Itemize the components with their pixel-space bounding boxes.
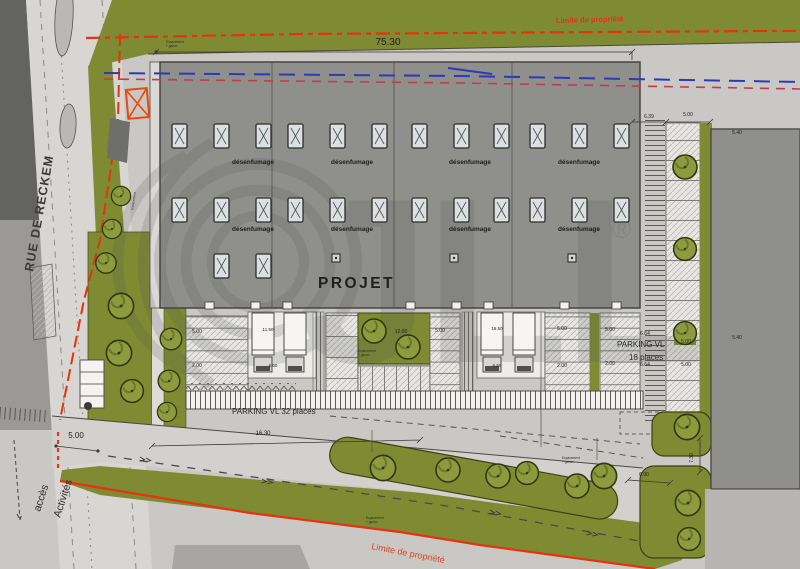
smoke-vent-label: désenfumage [232,159,274,166]
site-plan: JLL ® désenfumage désenfumage désenfumag… [0,0,800,569]
svg-text:+ gazon: + gazon [366,520,378,524]
tree-icon [675,490,700,515]
tree-icon [486,464,510,488]
tree-icon [362,319,386,343]
site-plan-drawing: JLL ® désenfumage désenfumage désenfumag… [0,0,800,569]
parking-main-label: PARKING VL 32 places [232,407,316,416]
svg-text:12.00: 12.00 [395,329,408,335]
smoke-vent-label: désenfumage [449,159,491,166]
svg-text:5.00: 5.00 [605,327,615,333]
svg-text:6.64: 6.64 [640,362,650,368]
svg-text:16.50: 16.50 [491,326,503,331]
tree-icon [106,340,131,365]
tree-icon [678,528,701,551]
svg-text:2.00: 2.00 [192,363,202,369]
svg-text:5.00: 5.00 [683,112,693,118]
tree-icon [121,380,144,403]
tree-icon [516,462,539,485]
tree-icon [160,328,182,350]
parking-side-label-2: 18 places [629,353,663,362]
tree-icon [157,402,176,421]
road-stub [172,545,310,569]
svg-text:11.50: 11.50 [263,327,274,332]
svg-text:+ gazon: + gazon [166,44,178,48]
svg-text:5.00: 5.00 [681,339,691,345]
svg-text:5.00: 5.00 [557,326,567,332]
tree-icon [674,238,697,261]
svg-text:6.90: 6.90 [639,472,649,478]
small-structure-dark [107,118,130,163]
svg-text:6.39: 6.39 [644,114,654,120]
smoke-vent-label: désenfumage [558,226,600,233]
tree-icon [370,455,395,480]
smoke-vent-label: désenfumage [232,226,274,233]
svg-text:6.60: 6.60 [269,363,278,368]
green-strip-right [700,123,712,420]
tree-icon [673,155,697,179]
svg-text:5.40: 5.40 [732,335,742,341]
adjacent-building [705,129,800,569]
parking-side-label-1: PARKING VL [617,340,665,349]
svg-text:5.00: 5.00 [435,328,445,334]
tree-icon [102,219,121,238]
stair-structure [80,360,104,410]
tree-icon [108,293,133,318]
svg-text:5.40: 5.40 [732,130,742,136]
tree-icon [111,186,130,205]
tree-icon [436,458,460,482]
tree-icon [565,474,589,498]
truck-icon [284,313,306,372]
svg-text:2.00: 2.00 [605,361,615,367]
project-title: PROJET [318,275,395,292]
truck-icon [513,313,535,372]
smoke-vent-label: désenfumage [558,159,600,166]
tree-icon [158,370,180,392]
svg-text:5.00: 5.00 [681,362,691,368]
svg-text:6.64: 6.64 [640,331,650,337]
smoke-vent-label: désenfumage [331,226,373,233]
tree-icon [96,253,116,273]
crosswalk-hatch [30,264,56,340]
smoke-vent-label: désenfumage [449,226,491,233]
tree-icon [396,335,420,359]
svg-text:5.00: 5.00 [192,329,202,335]
smoke-vent-label: désenfumage [331,159,373,166]
green-corner-2 [640,466,711,558]
tree-icon [591,463,616,488]
svg-text:6.60: 6.60 [493,363,502,368]
property-limit-label-top: Limite de propriété [556,14,624,25]
dim-access: 5.00 [68,431,84,440]
dim-building-width: 75.30 [375,37,400,48]
svg-text:7.30: 7.30 [689,453,695,463]
svg-text:+ gazon: + gazon [358,353,370,357]
svg-text:2.00: 2.00 [557,363,567,369]
tree-icon [674,414,699,439]
svg-text:+ gazon: + gazon [562,460,574,464]
dim-16-30: 16.30 [255,431,271,437]
